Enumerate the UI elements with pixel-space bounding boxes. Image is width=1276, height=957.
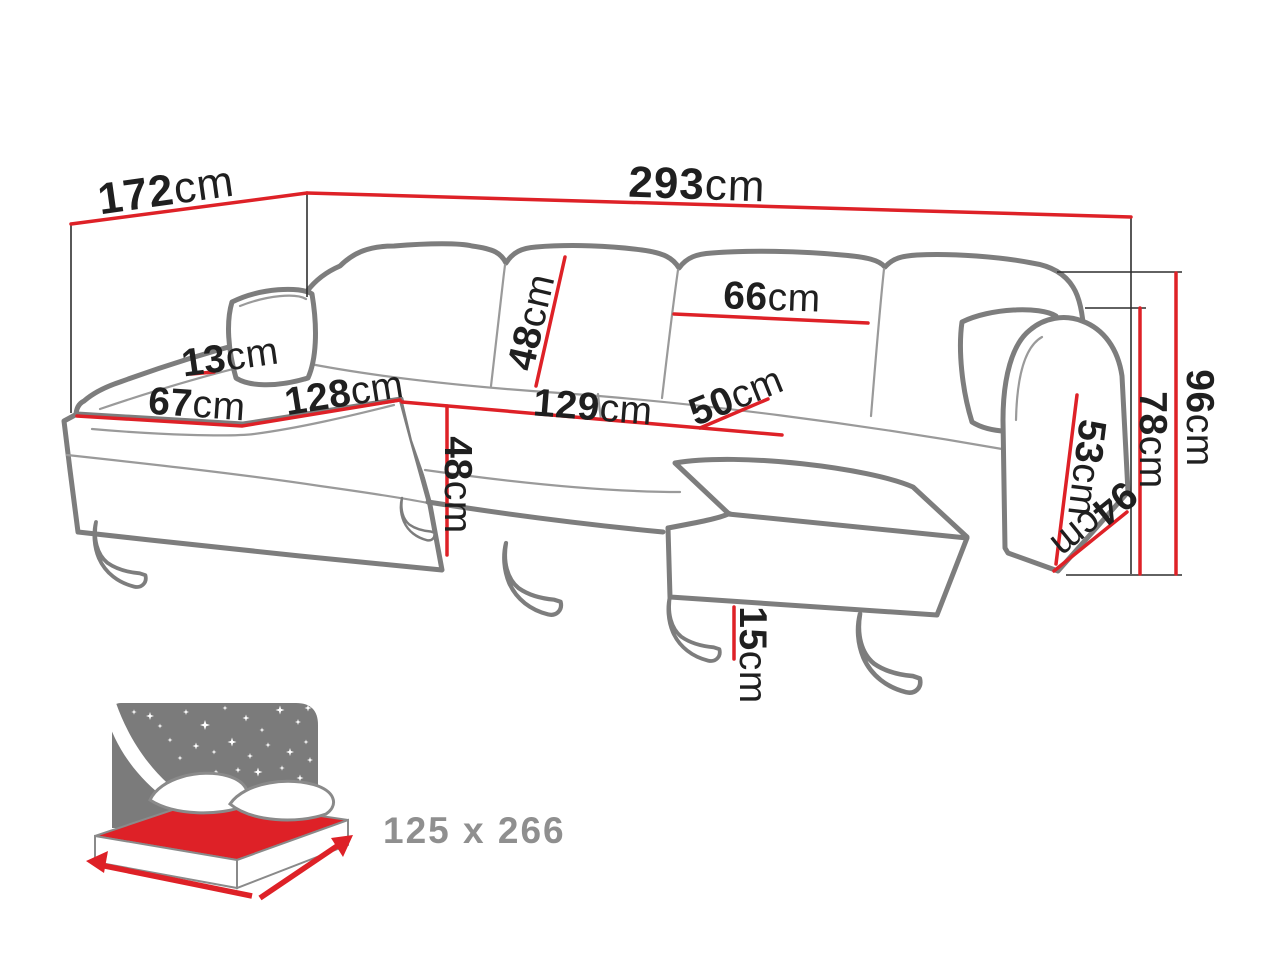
label-total-width: 293cm	[628, 157, 767, 211]
sofa-leg	[504, 543, 561, 615]
label-leg-height: 15cm	[732, 606, 775, 703]
label-total-depth: 172cm	[95, 156, 238, 224]
sleeping-area-size-label: 125 x 266	[383, 810, 566, 851]
label-armrest-height: 78cm	[1132, 391, 1175, 488]
sleeping-function-bed-icon	[86, 703, 353, 898]
sofa-outline	[64, 244, 1128, 693]
label-back-cushion-width: 66cm	[723, 274, 822, 320]
sofa-dimension-diagram: 172cm 293cm 66cm 48cm 13cm 67cm 128cm 12…	[0, 0, 1276, 957]
label-seat-height: 48cm	[437, 436, 480, 533]
sofa-leg	[668, 596, 719, 661]
diagram-canvas: 172cm 293cm 66cm 48cm 13cm 67cm 128cm 12…	[0, 0, 1276, 957]
label-total-height: 96cm	[1179, 369, 1222, 466]
sofa-leg	[858, 614, 920, 693]
label-chaise-front-width: 67cm	[147, 379, 247, 429]
